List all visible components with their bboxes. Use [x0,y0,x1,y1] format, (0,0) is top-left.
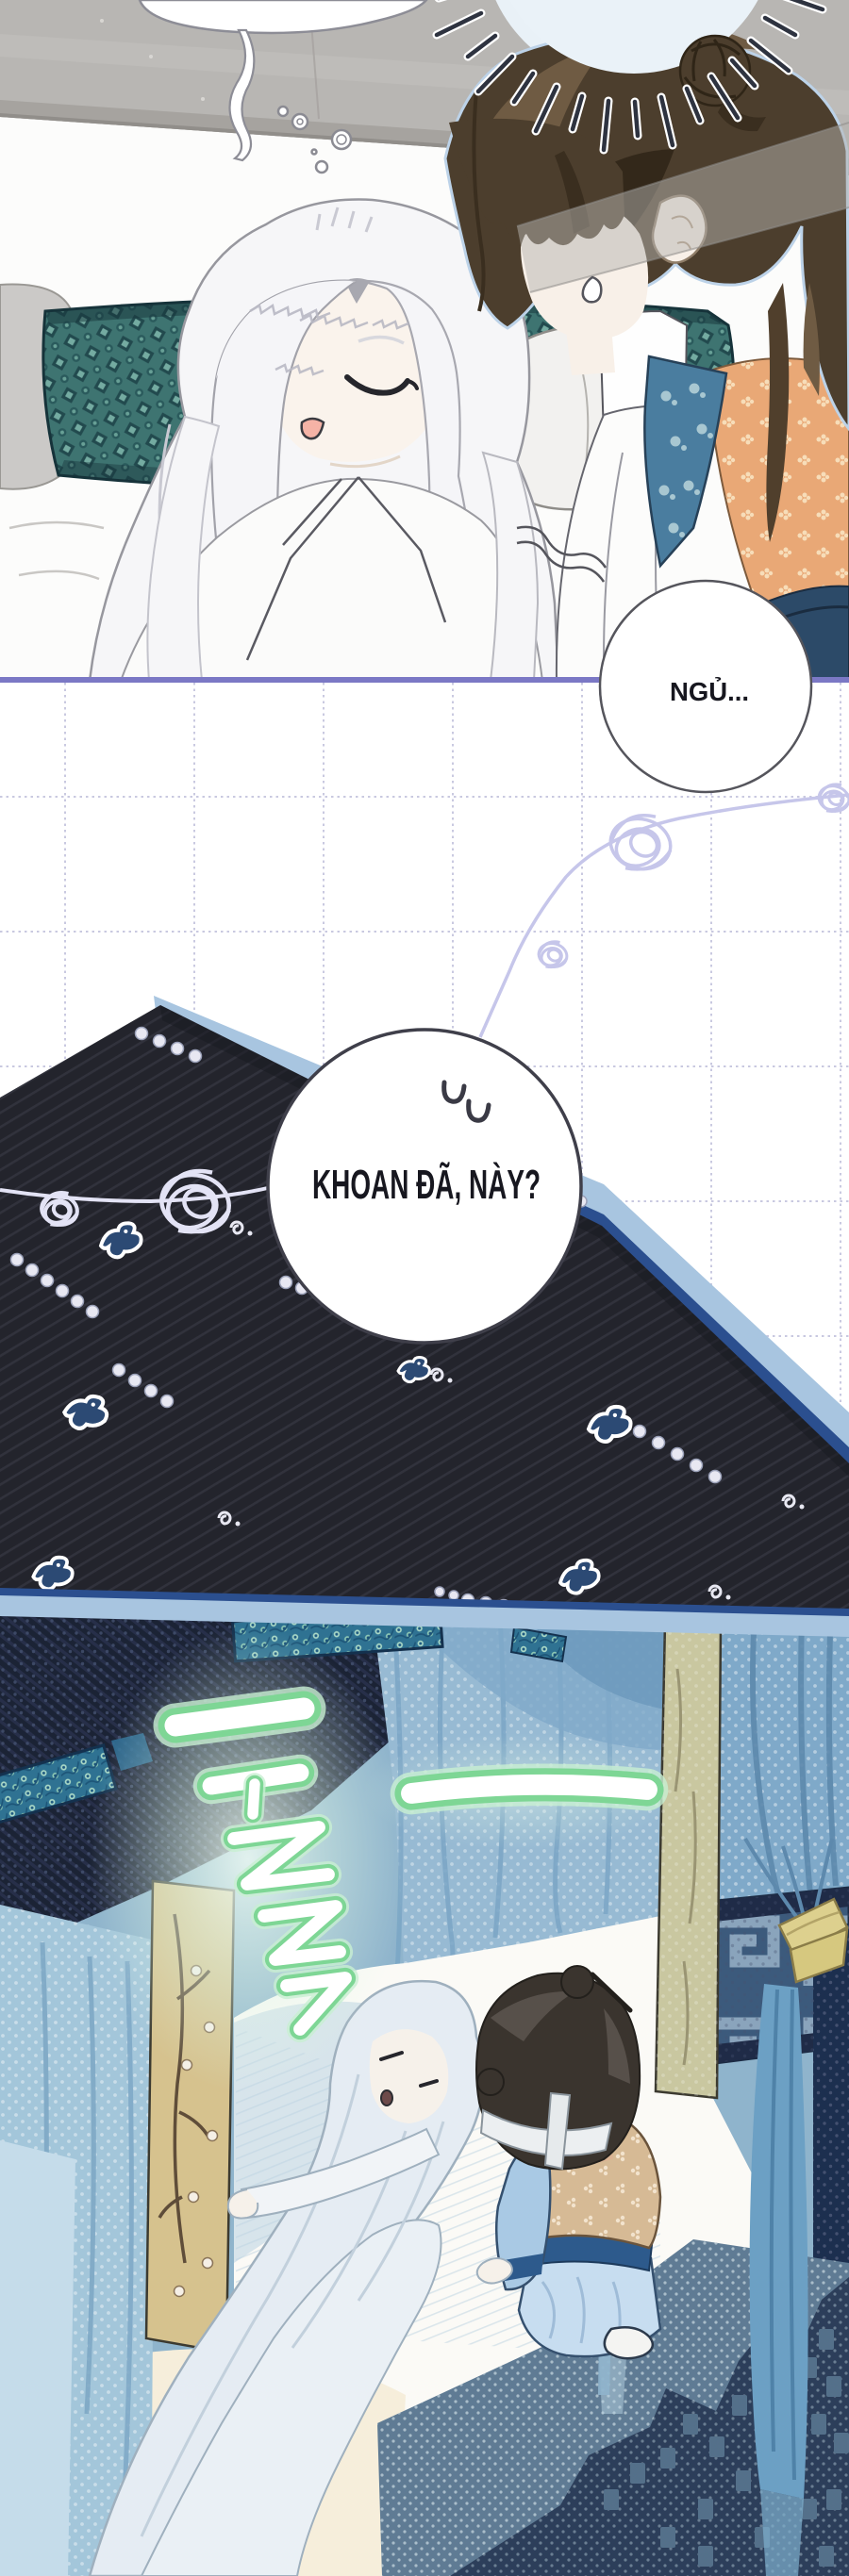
svg-text:KHOAN ĐÃ, NÀY?: KHOAN ĐÃ, NÀY? [312,1161,541,1208]
svg-text:NGỦ...: NGỦ... [670,676,749,706]
